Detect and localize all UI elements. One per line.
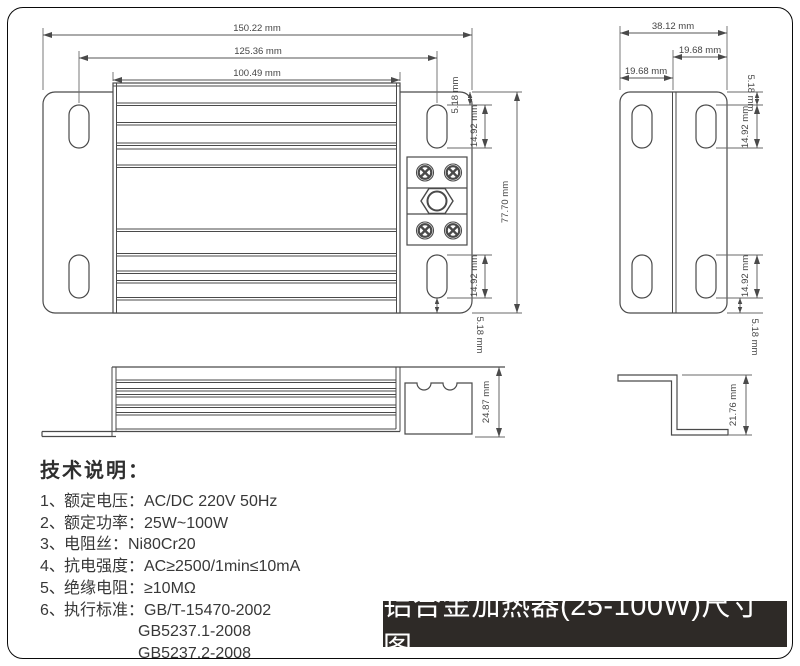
spec-item-number	[40, 643, 64, 665]
spec-item-text: 额定功率：25W~100W	[64, 513, 228, 535]
mounting-slot	[696, 255, 716, 298]
spec-item-text: 执行标准：GB/T-15470-2002	[64, 600, 271, 622]
side-mounting-slots	[632, 105, 716, 298]
banner-title: 铝合金加热器(25-100W)尺寸图	[383, 582, 787, 666]
terminal-screw	[445, 222, 462, 239]
spec-item-continuation: GB5237.1-2008	[40, 621, 300, 643]
hex-nut	[421, 189, 453, 214]
spec-item-text: GB5237.1-2008	[64, 621, 251, 643]
profile-view: 24.87 mm	[42, 367, 505, 437]
dim-bracket-height: 21.76 mm	[728, 384, 739, 426]
mounting-slot	[427, 255, 447, 298]
dim-front-edge-to-slot-top: 5.18 mm	[450, 76, 461, 113]
dim-profile-height: 24.87 mm	[481, 381, 492, 423]
dim-front-slot-length-top: 14.92 mm	[469, 105, 480, 147]
side-plate	[620, 92, 727, 313]
spec-item: 3、 电阻丝：Ni80Cr20	[40, 534, 300, 556]
spec-item-number: 6、	[40, 600, 64, 622]
spec-item-number: 1、	[40, 491, 64, 513]
terminal-block	[407, 157, 467, 245]
dim-side-left-half: 19.68 mm	[625, 66, 667, 77]
dim-front-slot-to-edge-bottom: 5.18 mm	[474, 317, 485, 354]
dim-side-slot-length-top: 14.92 mm	[740, 106, 751, 148]
profile-fin-lines	[116, 380, 396, 429]
spec-item: 1、 额定电压：AC/DC 220V 50Hz	[40, 491, 300, 513]
mounting-slot	[69, 255, 89, 298]
spec-item-continuation: GB5237.2-2008	[40, 643, 300, 665]
front-heater-body	[113, 83, 400, 313]
dim-side-right-half: 19.68 mm	[679, 45, 721, 56]
mounting-slot	[69, 105, 89, 148]
mounting-slot	[632, 105, 652, 148]
spec-item-text: 抗电强度：AC≥2500/1min≤10mA	[64, 556, 300, 578]
spec-item-number	[40, 621, 64, 643]
bracket-view: 21.76 mm	[618, 375, 752, 435]
spec-item: 6、 执行标准：GB/T-15470-2002	[40, 600, 300, 622]
dim-front-total-width: 150.22 mm	[233, 23, 281, 34]
dim-side-total-width: 38.12 mm	[652, 21, 694, 32]
spec-rows: 1、 额定电压：AC/DC 220V 50Hz 2、 额定功率：25W~100W…	[40, 491, 300, 665]
spec-item-text: GB5237.2-2008	[64, 643, 251, 665]
mounting-slot	[427, 105, 447, 148]
spec-item-text: 额定电压：AC/DC 220V 50Hz	[64, 491, 277, 513]
dim-front-slot-length-bottom: 14.92 mm	[469, 255, 480, 297]
spec-item: 4、 抗电强度：AC≥2500/1min≤10mA	[40, 556, 300, 578]
front-view: 150.22 mm 125.36 mm 100.49 mm 5.18 mm 14…	[43, 23, 522, 354]
terminal-screw	[417, 164, 434, 181]
mounting-slot	[632, 255, 652, 298]
dim-front-slot-span: 125.36 mm	[234, 46, 282, 57]
spec-item-number: 3、	[40, 534, 64, 556]
specs-title: 技术说明：	[40, 454, 300, 483]
spec-item-number: 4、	[40, 556, 64, 578]
spec-item-number: 2、	[40, 513, 64, 535]
dim-front-overall-height: 77.70 mm	[500, 181, 511, 223]
spec-item-number: 5、	[40, 578, 64, 600]
spec-item-text: 绝缘电阻：≥10MΩ	[64, 578, 196, 600]
title-banner: 铝合金加热器(25-100W)尺寸图	[383, 601, 787, 647]
dim-front-body-width: 100.49 mm	[233, 68, 281, 79]
spec-item: 5、 绝缘电阻：≥10MΩ	[40, 578, 300, 600]
mounting-slot	[696, 105, 716, 148]
spec-item-text: 电阻丝：Ni80Cr20	[64, 534, 196, 556]
dimension-sheet: 150.22 mm 125.36 mm 100.49 mm 5.18 mm 14…	[0, 0, 800, 666]
dim-side-slot-length-bottom: 14.92 mm	[740, 255, 751, 297]
terminal-screw	[417, 222, 434, 239]
bracket-profile	[618, 375, 728, 435]
profile-terminal-box	[405, 383, 472, 434]
dim-side-slot-to-edge-bottom: 5.18 mm	[749, 319, 760, 356]
spec-item: 2、 额定功率：25W~100W	[40, 513, 300, 535]
technical-notes: 技术说明： 1、 额定电压：AC/DC 220V 50Hz 2、 额定功率：25…	[40, 454, 300, 665]
side-view: 38.12 mm 19.68 mm 19.68 mm 5.18 mm 14.92…	[620, 21, 763, 356]
terminal-screw	[445, 164, 462, 181]
